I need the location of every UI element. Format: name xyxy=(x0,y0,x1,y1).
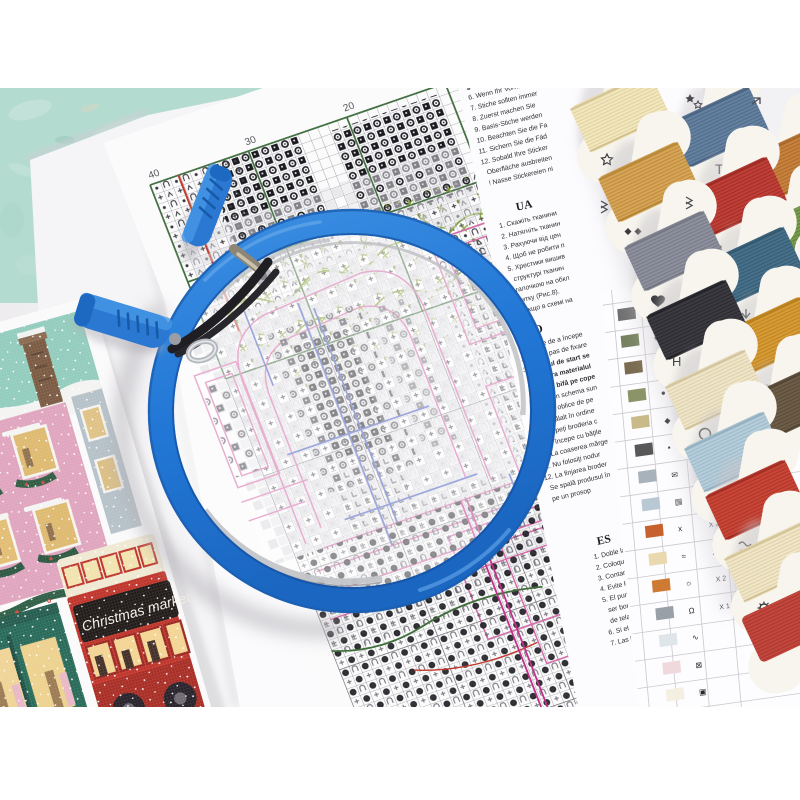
svg-text:☼: ☼ xyxy=(685,578,693,588)
svg-text:x: x xyxy=(678,524,683,534)
svg-text:✉: ✉ xyxy=(671,470,679,480)
svg-text:∿: ∿ xyxy=(692,633,699,643)
svg-text:Ω: Ω xyxy=(688,606,695,616)
svg-text:⊠: ⊠ xyxy=(695,660,702,670)
svg-text:▣: ▣ xyxy=(699,687,707,697)
svg-text:▤: ▤ xyxy=(674,497,682,507)
